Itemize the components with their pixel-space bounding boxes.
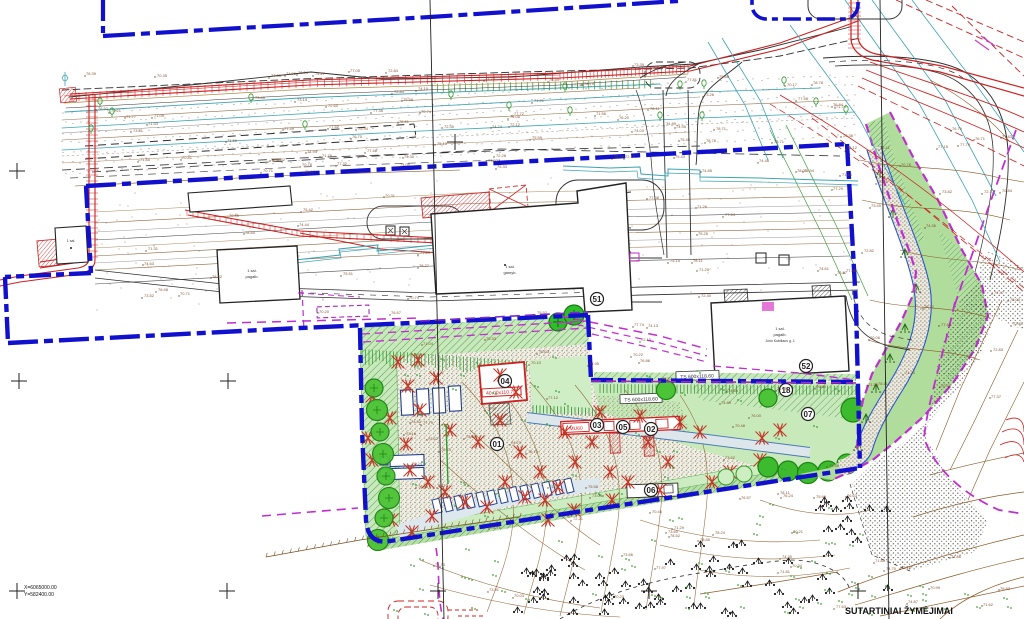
svg-text:03: 03 bbox=[593, 421, 602, 430]
svg-text:70.10: 70.10 bbox=[531, 360, 542, 365]
svg-text:77.98: 77.98 bbox=[798, 96, 809, 101]
svg-text:TS 600x118.60: TS 600x118.60 bbox=[624, 396, 658, 403]
svg-text:04: 04 bbox=[501, 377, 510, 386]
svg-text:70.46: 70.46 bbox=[652, 509, 663, 514]
svg-text:75.30: 75.30 bbox=[404, 154, 415, 159]
svg-text:73.62: 73.62 bbox=[725, 455, 736, 460]
svg-text:70.81: 70.81 bbox=[182, 155, 193, 160]
svg-text:75.25: 75.25 bbox=[698, 231, 709, 236]
svg-text:77.97: 77.97 bbox=[656, 565, 667, 570]
svg-text:77.05: 77.05 bbox=[271, 73, 282, 78]
svg-text:75.42: 75.42 bbox=[303, 207, 314, 212]
svg-text:71.31: 71.31 bbox=[148, 246, 159, 251]
svg-text:78.24: 78.24 bbox=[298, 70, 309, 75]
svg-text:77.97: 77.97 bbox=[487, 406, 498, 411]
svg-text:78.24: 78.24 bbox=[715, 530, 726, 535]
svg-text:71.62: 71.62 bbox=[983, 602, 994, 607]
svg-text:74.00: 74.00 bbox=[400, 162, 411, 167]
svg-text:77.05: 77.05 bbox=[350, 68, 361, 73]
svg-text:74.95: 74.95 bbox=[676, 124, 687, 129]
svg-text:51: 51 bbox=[593, 295, 602, 304]
svg-text:gamyb.: gamyb. bbox=[503, 270, 516, 275]
svg-text:75.33: 75.33 bbox=[486, 336, 497, 341]
svg-text:73.52: 73.52 bbox=[144, 293, 155, 298]
svg-text:78.78: 78.78 bbox=[813, 80, 824, 85]
svg-text:76.95: 76.95 bbox=[418, 484, 429, 489]
svg-text:70.71: 70.71 bbox=[180, 291, 191, 296]
svg-text:77.81: 77.81 bbox=[687, 77, 698, 82]
svg-text:71.85: 71.85 bbox=[140, 157, 151, 162]
svg-text:78.52: 78.52 bbox=[212, 274, 223, 279]
svg-text:72.81: 72.81 bbox=[1013, 321, 1024, 326]
svg-text:76.71: 76.71 bbox=[975, 136, 986, 141]
svg-text:70.06: 70.06 bbox=[870, 335, 881, 340]
svg-text:77.48: 77.48 bbox=[367, 148, 378, 153]
svg-text:74.48: 74.48 bbox=[759, 158, 770, 163]
svg-text:73.69: 73.69 bbox=[255, 95, 266, 100]
svg-text:78.76: 78.76 bbox=[706, 138, 717, 143]
svg-text:71.73: 71.73 bbox=[485, 76, 496, 81]
svg-text:74.86: 74.86 bbox=[951, 554, 962, 559]
svg-text:71.53: 71.53 bbox=[148, 121, 159, 126]
svg-text:74.10: 74.10 bbox=[418, 86, 429, 91]
svg-text:76.71: 76.71 bbox=[438, 483, 449, 488]
svg-text:70.22: 70.22 bbox=[633, 352, 644, 357]
svg-text:70.71: 70.71 bbox=[263, 168, 274, 173]
svg-text:76.65: 76.65 bbox=[816, 384, 827, 389]
svg-text:75.45: 75.45 bbox=[680, 137, 691, 142]
svg-text:75.15: 75.15 bbox=[670, 258, 681, 263]
svg-text:72.83: 72.83 bbox=[993, 347, 1004, 352]
svg-text:X=6065000.00: X=6065000.00 bbox=[24, 585, 57, 591]
svg-text:71.16: 71.16 bbox=[842, 172, 853, 177]
svg-text:75.58: 75.58 bbox=[588, 484, 599, 489]
svg-text:70.41: 70.41 bbox=[941, 383, 952, 388]
svg-text:75.51: 75.51 bbox=[343, 271, 354, 276]
svg-text:72.14: 72.14 bbox=[625, 154, 636, 159]
svg-text:70.38: 70.38 bbox=[843, 133, 854, 138]
svg-text:73.39: 73.39 bbox=[634, 62, 645, 67]
svg-text:71.85: 71.85 bbox=[875, 558, 886, 563]
svg-text:74.89: 74.89 bbox=[721, 400, 732, 405]
svg-text:78.87: 78.87 bbox=[662, 376, 673, 381]
svg-text:77.79: 77.79 bbox=[960, 142, 971, 147]
svg-text:75.99: 75.99 bbox=[816, 494, 827, 499]
svg-text:70.23: 70.23 bbox=[614, 594, 625, 599]
svg-text:75.59: 75.59 bbox=[532, 135, 543, 140]
svg-text:78.76: 78.76 bbox=[491, 525, 502, 530]
svg-text:73.16: 73.16 bbox=[406, 431, 417, 436]
svg-text:75.73: 75.73 bbox=[441, 447, 452, 452]
svg-text:77.74: 77.74 bbox=[634, 322, 645, 327]
svg-text:71.04: 71.04 bbox=[423, 341, 434, 346]
svg-text:73.12: 73.12 bbox=[847, 145, 858, 150]
svg-text:52: 52 bbox=[802, 362, 811, 371]
svg-text:72.21: 72.21 bbox=[573, 516, 584, 521]
svg-text:74.61: 74.61 bbox=[819, 266, 830, 271]
svg-text:76.59: 76.59 bbox=[549, 77, 560, 82]
svg-text:77.38: 77.38 bbox=[649, 195, 660, 200]
svg-text:77.12: 77.12 bbox=[548, 395, 559, 400]
svg-text:77.37: 77.37 bbox=[991, 394, 1002, 399]
svg-text:77.65: 77.65 bbox=[941, 322, 952, 327]
svg-text:06: 06 bbox=[647, 486, 656, 495]
svg-text:70.75: 70.75 bbox=[878, 179, 889, 184]
svg-text:75.13: 75.13 bbox=[437, 141, 448, 146]
svg-text:78.11: 78.11 bbox=[693, 258, 703, 263]
svg-text:70.55: 70.55 bbox=[229, 213, 240, 218]
svg-text:74.44: 74.44 bbox=[299, 222, 310, 227]
svg-text:70.78: 70.78 bbox=[302, 162, 313, 167]
svg-text:76.22: 76.22 bbox=[924, 304, 935, 309]
svg-text:72.60: 72.60 bbox=[328, 103, 339, 108]
svg-text:70.20: 70.20 bbox=[319, 309, 330, 314]
svg-text:1 sal.: 1 sal. bbox=[247, 268, 257, 273]
svg-text:72.84: 72.84 bbox=[388, 68, 399, 73]
svg-text:1 sal.: 1 sal. bbox=[505, 264, 515, 269]
svg-text:76.67: 76.67 bbox=[391, 310, 402, 315]
svg-text:71.21: 71.21 bbox=[534, 98, 545, 103]
svg-text:77.72: 77.72 bbox=[514, 111, 525, 116]
svg-text:73.49: 73.49 bbox=[871, 203, 882, 208]
svg-text:74.13: 74.13 bbox=[648, 323, 659, 328]
svg-text:76.48: 76.48 bbox=[158, 287, 169, 292]
svg-text:74.54: 74.54 bbox=[728, 388, 739, 393]
svg-text:74.63: 74.63 bbox=[144, 261, 155, 266]
svg-text:07: 07 bbox=[804, 410, 813, 419]
svg-text:75.76: 75.76 bbox=[614, 154, 625, 159]
svg-text:76.83: 76.83 bbox=[1000, 586, 1011, 591]
svg-text:70.99: 70.99 bbox=[930, 585, 941, 590]
svg-text:MU60: MU60 bbox=[569, 426, 583, 433]
svg-text:75.59: 75.59 bbox=[829, 463, 840, 468]
svg-text:73.14: 73.14 bbox=[297, 97, 308, 102]
svg-text:71.74: 71.74 bbox=[836, 104, 847, 109]
svg-text:77.39: 77.39 bbox=[284, 126, 295, 131]
svg-text:70.78: 70.78 bbox=[901, 162, 912, 167]
svg-text:76.39: 76.39 bbox=[86, 71, 97, 76]
svg-text:72.82: 72.82 bbox=[864, 248, 875, 253]
svg-text:SUTARTINIAI ŽYMĖJIMAI: SUTARTINIAI ŽYMĖJIMAI bbox=[845, 605, 953, 616]
svg-text:75.43: 75.43 bbox=[675, 154, 686, 159]
svg-text:73.60: 73.60 bbox=[668, 529, 679, 534]
svg-text:72.17: 72.17 bbox=[984, 189, 995, 194]
svg-text:78.71: 78.71 bbox=[716, 126, 727, 131]
svg-text:72.10: 72.10 bbox=[641, 337, 652, 342]
svg-text:77.79: 77.79 bbox=[423, 420, 434, 425]
svg-text:73.07: 73.07 bbox=[305, 169, 316, 174]
svg-text:70.35: 70.35 bbox=[157, 73, 168, 78]
svg-text:70.03: 70.03 bbox=[514, 593, 525, 598]
svg-text:73.91: 73.91 bbox=[489, 587, 500, 592]
svg-text:76.00: 76.00 bbox=[751, 413, 762, 418]
svg-text:72.12: 72.12 bbox=[510, 122, 521, 127]
svg-text:77.15: 77.15 bbox=[938, 144, 949, 149]
svg-text:71.58: 71.58 bbox=[868, 382, 879, 387]
svg-text:73.81: 73.81 bbox=[133, 128, 144, 133]
svg-text:76.20: 76.20 bbox=[619, 115, 630, 120]
svg-text:77.29: 77.29 bbox=[420, 250, 431, 255]
svg-text:71.20: 71.20 bbox=[905, 370, 916, 375]
svg-text:76.11: 76.11 bbox=[650, 106, 660, 111]
svg-text:02: 02 bbox=[647, 425, 656, 434]
svg-text:71.76: 71.76 bbox=[322, 153, 333, 158]
svg-text:78.11: 78.11 bbox=[878, 381, 888, 386]
svg-text:1 sal.: 1 sal. bbox=[67, 239, 76, 243]
svg-text:74.70: 74.70 bbox=[886, 566, 897, 571]
svg-text:70.74: 70.74 bbox=[421, 109, 432, 114]
svg-text:71.26: 71.26 bbox=[697, 204, 708, 209]
svg-text:75.68: 75.68 bbox=[719, 74, 730, 79]
svg-text:71.56: 71.56 bbox=[596, 111, 607, 116]
svg-text:76.00: 76.00 bbox=[1010, 297, 1021, 302]
svg-text:77.52: 77.52 bbox=[329, 124, 340, 129]
svg-text:71.94: 71.94 bbox=[804, 168, 815, 173]
svg-text:74.47: 74.47 bbox=[994, 290, 1005, 295]
svg-text:pagalb.: pagalb. bbox=[245, 274, 258, 279]
svg-text:71.57: 71.57 bbox=[549, 484, 560, 489]
svg-text:70.21: 70.21 bbox=[793, 529, 804, 534]
svg-text:78.27: 78.27 bbox=[419, 263, 430, 268]
svg-text:76.61: 76.61 bbox=[399, 119, 410, 124]
svg-text:74.87: 74.87 bbox=[908, 599, 919, 604]
svg-text:73.71: 73.71 bbox=[774, 139, 785, 144]
svg-text:77.29: 77.29 bbox=[833, 186, 844, 191]
svg-text:72.40: 72.40 bbox=[701, 293, 712, 298]
svg-text:72.16: 72.16 bbox=[901, 565, 912, 570]
svg-text:70.74: 70.74 bbox=[409, 295, 420, 300]
svg-text:77.32: 77.32 bbox=[337, 161, 348, 166]
svg-text:74.27: 74.27 bbox=[315, 71, 326, 76]
svg-text:77.88: 77.88 bbox=[846, 268, 857, 273]
svg-text:1 sal.: 1 sal. bbox=[775, 326, 785, 331]
svg-text:78.80: 78.80 bbox=[245, 230, 256, 235]
svg-text:05: 05 bbox=[619, 423, 628, 432]
svg-text:76.24: 76.24 bbox=[412, 461, 423, 466]
svg-text:71.09: 71.09 bbox=[154, 113, 165, 118]
svg-text:74.30: 74.30 bbox=[782, 554, 793, 559]
svg-text:73.26: 73.26 bbox=[704, 92, 715, 97]
svg-text:71.25: 71.25 bbox=[699, 267, 710, 272]
svg-text:71.77: 71.77 bbox=[126, 114, 137, 119]
svg-text:73.04: 73.04 bbox=[592, 493, 603, 498]
svg-text:77.24: 77.24 bbox=[725, 212, 736, 217]
svg-text:75.33: 75.33 bbox=[497, 164, 508, 169]
svg-text:71.96: 71.96 bbox=[286, 71, 297, 76]
svg-text:73.22: 73.22 bbox=[428, 436, 439, 441]
svg-text:75.58: 75.58 bbox=[403, 97, 414, 102]
svg-text:71.05: 71.05 bbox=[777, 386, 788, 391]
svg-text:74.03: 74.03 bbox=[634, 128, 645, 133]
svg-text:76.73: 76.73 bbox=[528, 449, 539, 454]
svg-text:74.95: 74.95 bbox=[589, 361, 600, 366]
svg-text:78.85: 78.85 bbox=[466, 434, 477, 439]
svg-text:78.85: 78.85 bbox=[700, 537, 711, 542]
svg-text:74.85: 74.85 bbox=[702, 168, 713, 173]
svg-text:71.81: 71.81 bbox=[780, 569, 791, 574]
svg-text:74.70: 74.70 bbox=[511, 440, 522, 445]
svg-text:78.11: 78.11 bbox=[780, 490, 790, 495]
svg-text:73.66: 73.66 bbox=[623, 552, 634, 557]
svg-text:75.52: 75.52 bbox=[537, 310, 548, 315]
svg-text:76.63: 76.63 bbox=[847, 493, 858, 498]
svg-text:01: 01 bbox=[493, 440, 502, 449]
svg-text:Y=582400.00: Y=582400.00 bbox=[24, 592, 54, 598]
svg-text:76.70: 76.70 bbox=[352, 134, 363, 139]
svg-text:77.35: 77.35 bbox=[373, 108, 384, 113]
svg-text:74.94: 74.94 bbox=[307, 149, 318, 154]
svg-text:73.92: 73.92 bbox=[488, 158, 499, 163]
svg-text:70.48: 70.48 bbox=[735, 423, 746, 428]
svg-text:77.83: 77.83 bbox=[1002, 134, 1013, 139]
svg-text:72.84: 72.84 bbox=[394, 89, 405, 94]
svg-text:76.03: 76.03 bbox=[539, 349, 550, 354]
svg-text:71.56: 71.56 bbox=[227, 138, 238, 143]
svg-text:78.79: 78.79 bbox=[584, 81, 595, 86]
svg-text:74.32: 74.32 bbox=[411, 419, 422, 424]
svg-text:72.30: 72.30 bbox=[444, 124, 455, 129]
svg-text:76.57: 76.57 bbox=[741, 495, 752, 500]
svg-text:72.23: 72.23 bbox=[271, 157, 282, 162]
svg-text:70.21: 70.21 bbox=[111, 108, 122, 113]
svg-text:70.17: 70.17 bbox=[787, 82, 798, 87]
svg-text:76.79: 76.79 bbox=[952, 126, 963, 131]
svg-text:70.31: 70.31 bbox=[385, 193, 396, 198]
svg-text:pagalb.: pagalb. bbox=[773, 332, 786, 337]
svg-text:76.86: 76.86 bbox=[640, 358, 651, 363]
svg-text:74.74: 74.74 bbox=[492, 124, 503, 129]
svg-text:71.73: 71.73 bbox=[435, 562, 446, 567]
svg-text:71.89: 71.89 bbox=[666, 121, 677, 126]
svg-text:75.94: 75.94 bbox=[358, 126, 369, 131]
svg-text:Jono Kubiliaus g. 1: Jono Kubiliaus g. 1 bbox=[765, 339, 795, 343]
svg-text:74.36: 74.36 bbox=[926, 223, 937, 228]
svg-text:70.84: 70.84 bbox=[1002, 188, 1013, 193]
svg-text:75.11: 75.11 bbox=[880, 145, 890, 150]
svg-text:73.82: 73.82 bbox=[942, 189, 953, 194]
svg-text:70.34: 70.34 bbox=[792, 563, 803, 568]
